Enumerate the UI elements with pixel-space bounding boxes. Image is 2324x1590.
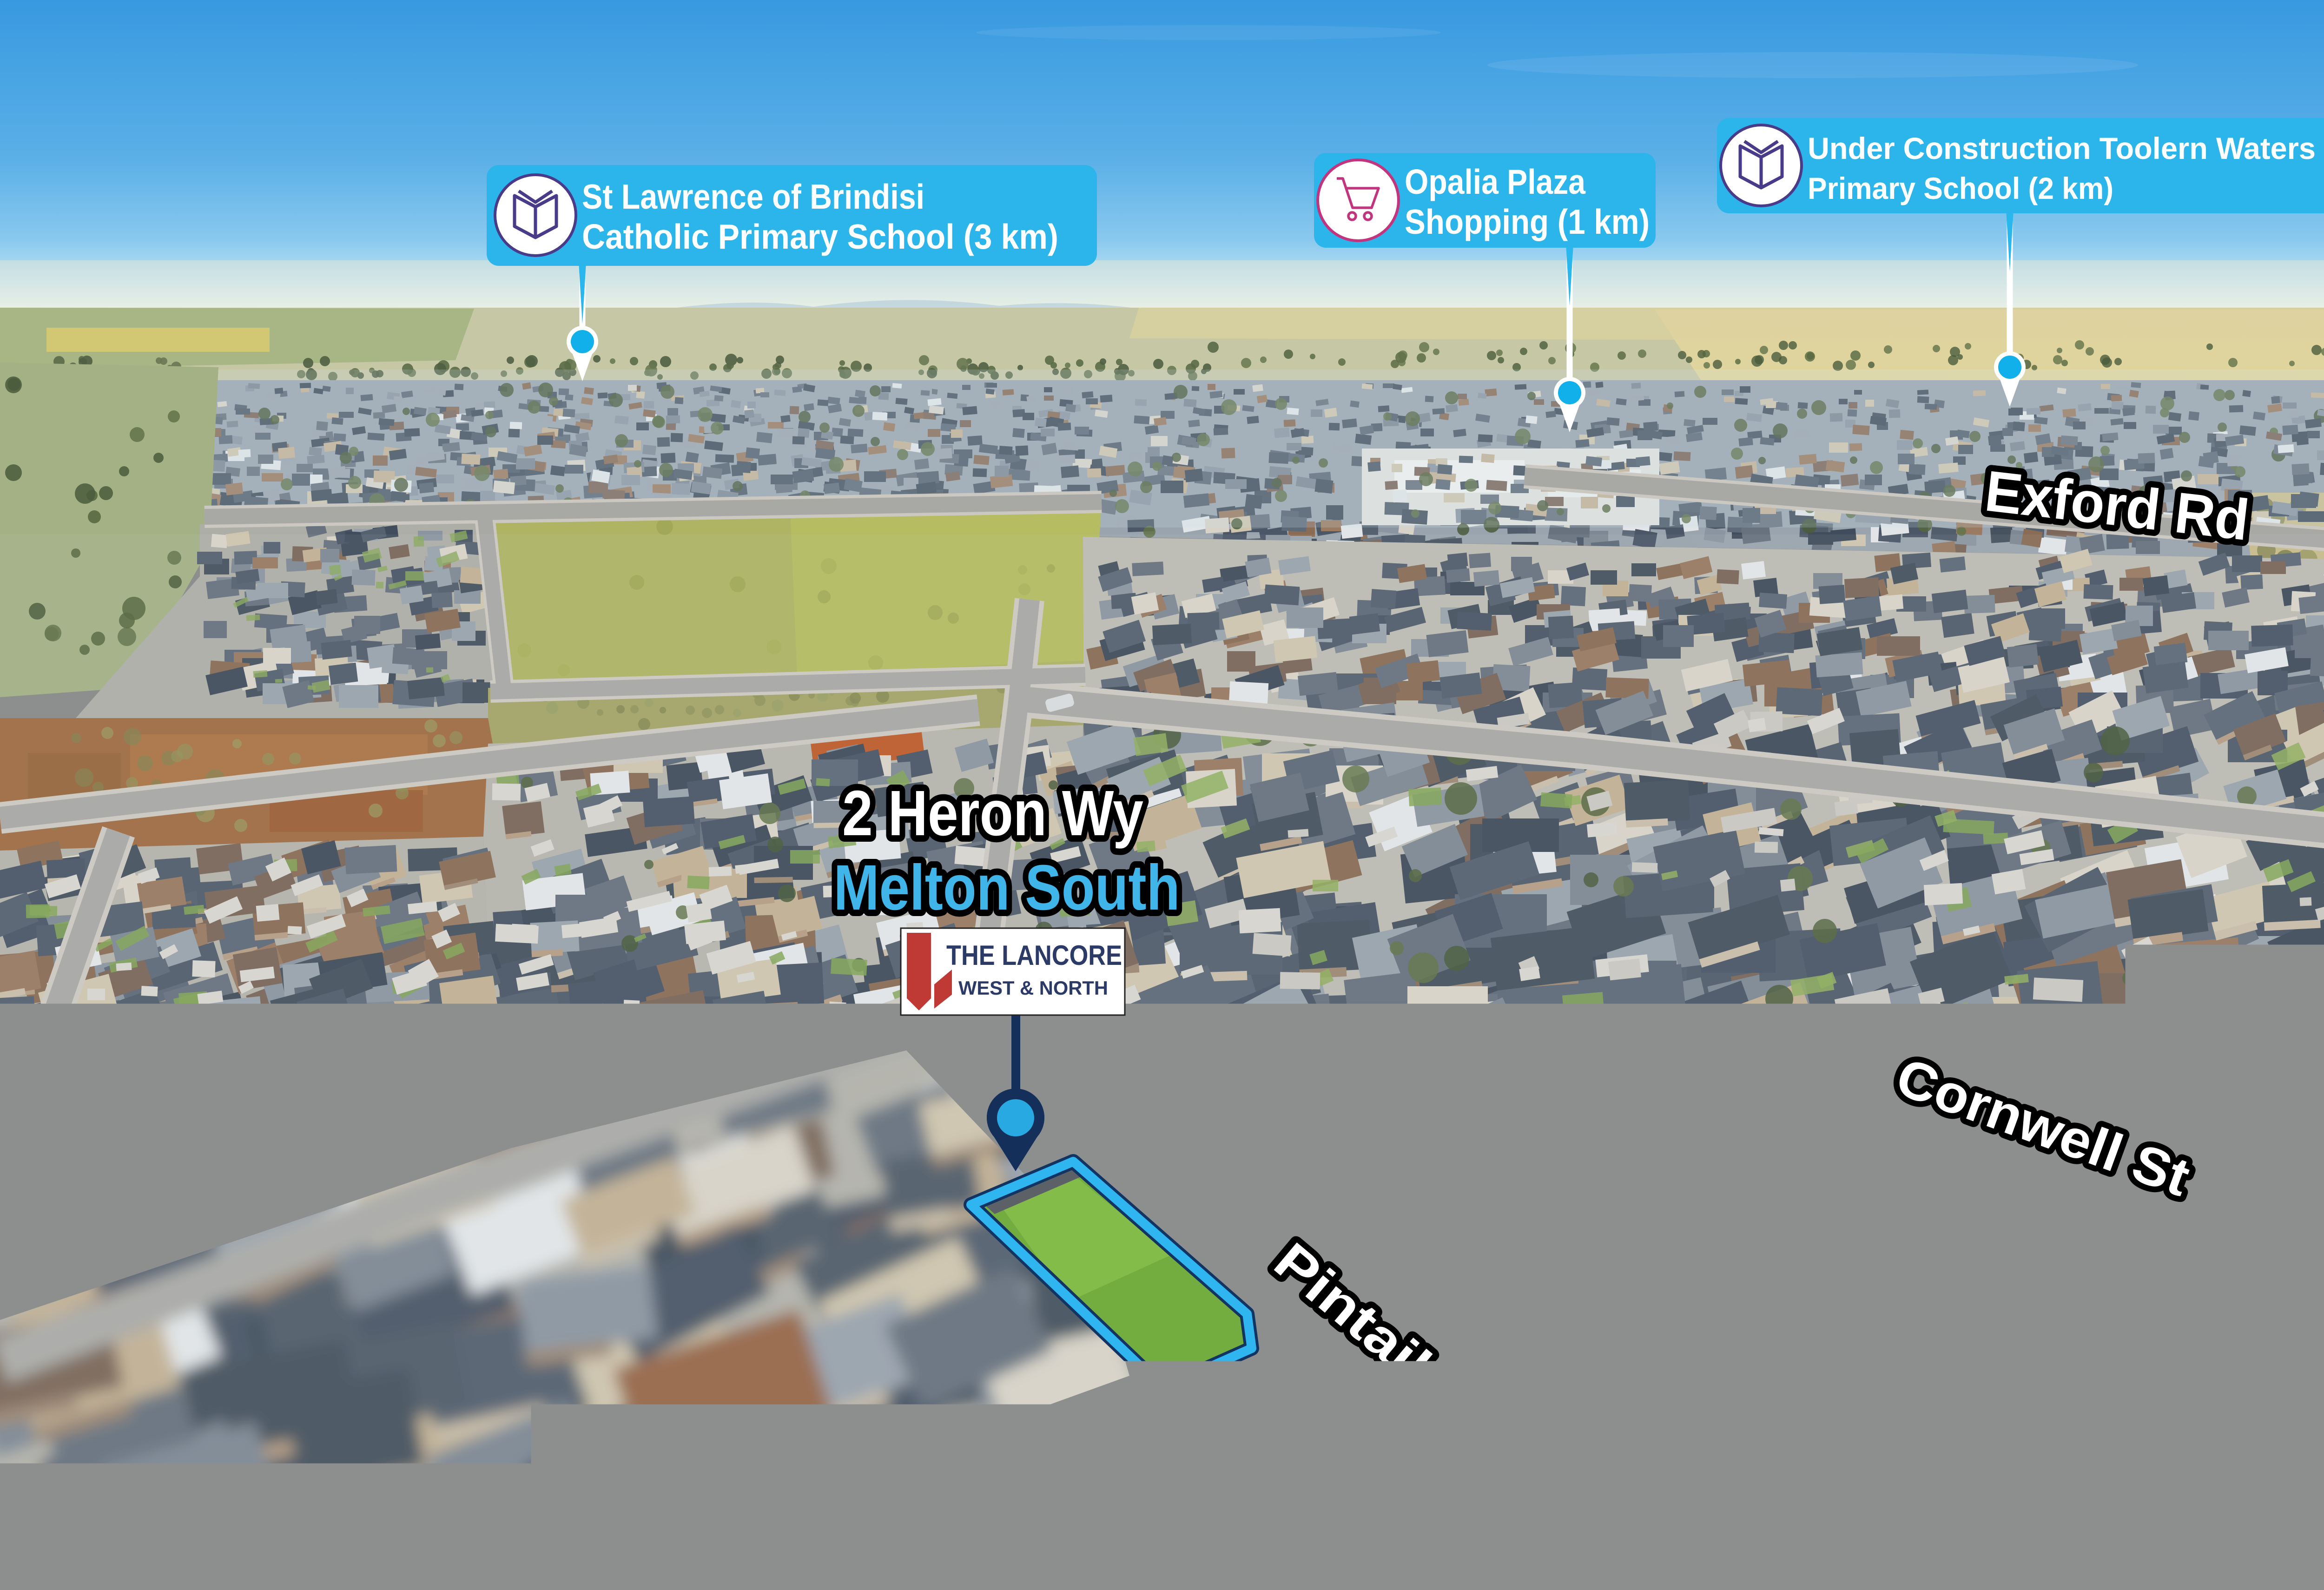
svg-text:Under Construction Toolern Wat: Under Construction Toolern Waters <box>1808 131 2316 165</box>
svg-text:Opalia Plaza: Opalia Plaza <box>1405 162 1586 201</box>
svg-text:THE LANCORE: THE LANCORE <box>946 940 1122 971</box>
svg-text:2 Heron Wy: 2 Heron Wy <box>842 778 1143 849</box>
svg-text:WEST & NORTH: WEST & NORTH <box>958 977 1108 999</box>
svg-text:Shopping (1 km): Shopping (1 km) <box>1405 202 1650 241</box>
svg-text:Catholic Primary School (3 km): Catholic Primary School (3 km) <box>582 217 1058 256</box>
svg-text:St Lawrence of Brindisi: St Lawrence of Brindisi <box>582 177 924 216</box>
svg-text:Primary School (2 km): Primary School (2 km) <box>1808 171 2113 205</box>
svg-text:Melton South: Melton South <box>834 852 1180 924</box>
